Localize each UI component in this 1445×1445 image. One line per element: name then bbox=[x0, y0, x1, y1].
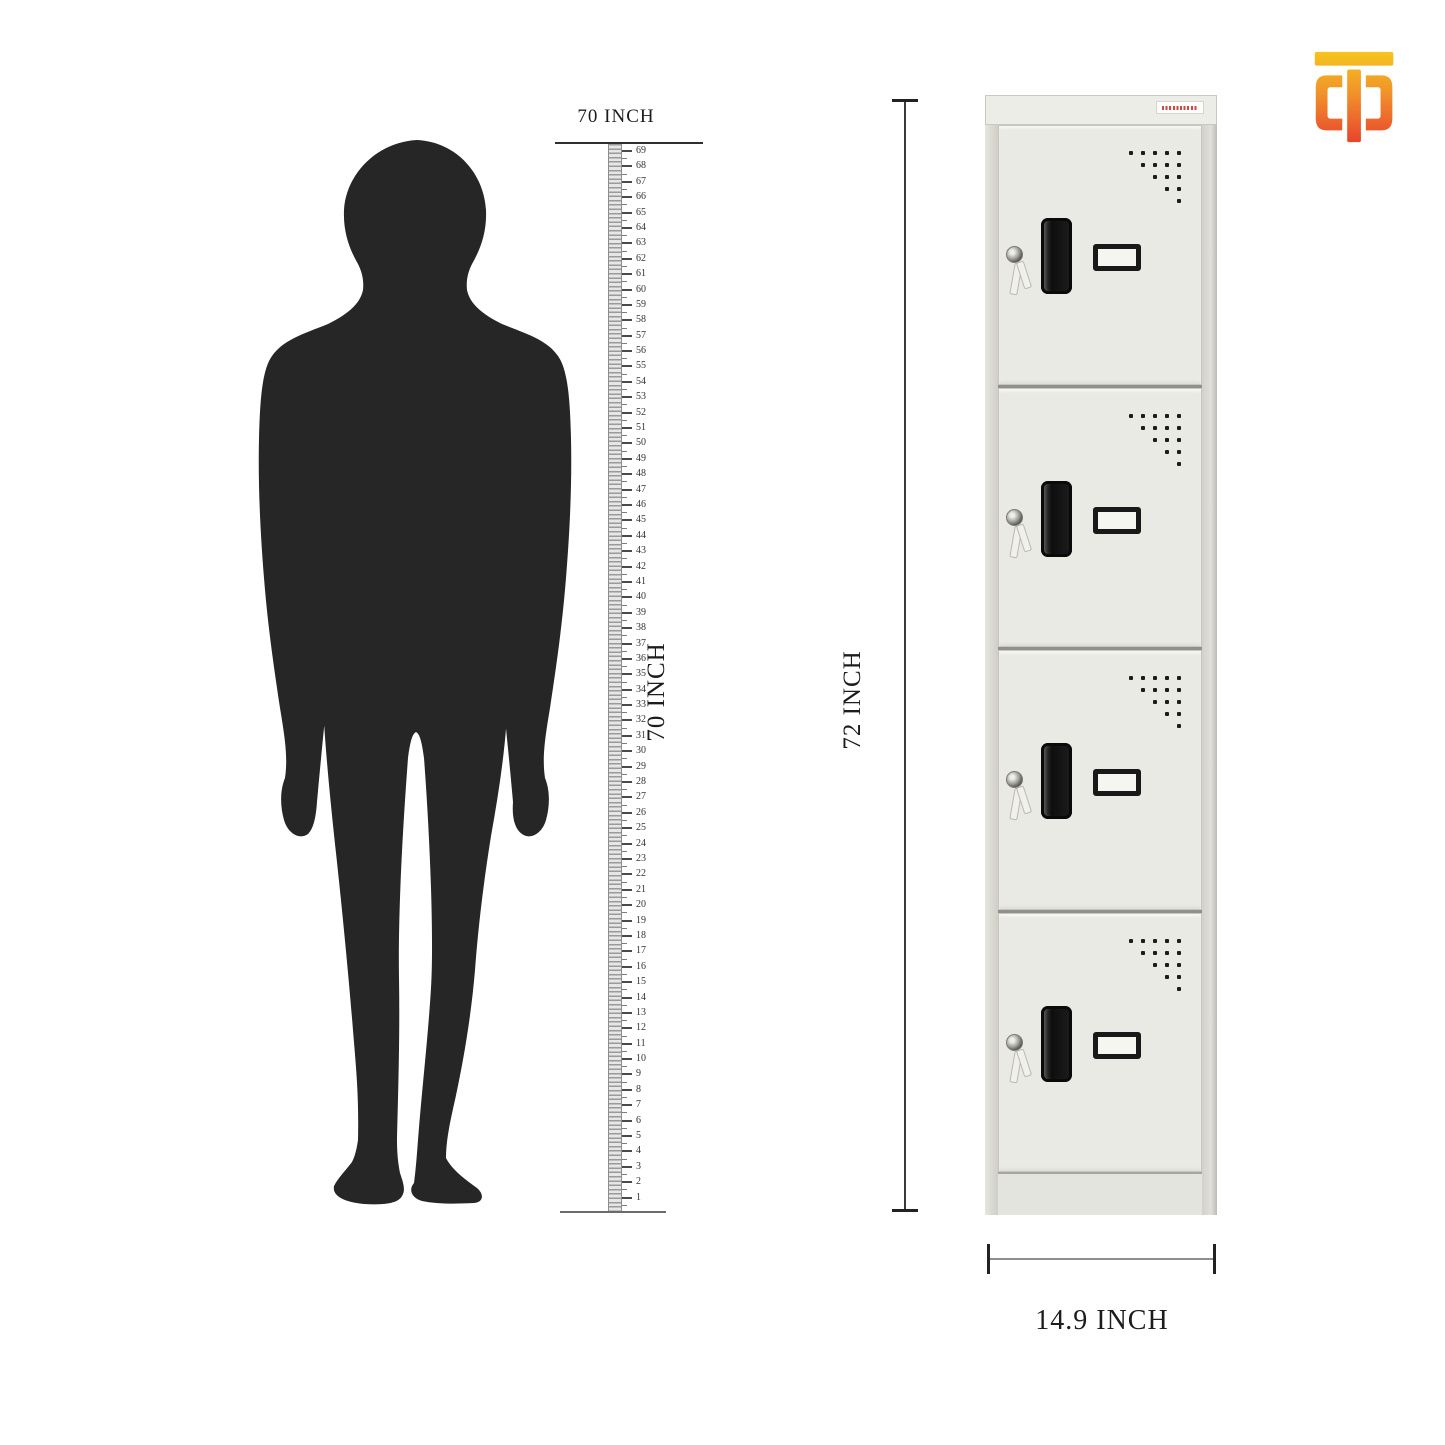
ruler-number: 18 bbox=[636, 930, 646, 942]
ruler-number: 14 bbox=[636, 992, 646, 1004]
ruler-number: 11 bbox=[636, 1038, 646, 1050]
locker-door bbox=[998, 650, 1202, 910]
ruler-number: 27 bbox=[636, 791, 646, 803]
ruler-number: 8 bbox=[636, 1084, 641, 1096]
ruler-number: 69 bbox=[636, 145, 646, 157]
ruler-top-label: 70 INCH bbox=[552, 106, 680, 128]
ruler-number: 46 bbox=[636, 499, 646, 511]
ruler-number: 5 bbox=[636, 1130, 641, 1142]
ruler-strip bbox=[608, 144, 622, 1213]
height-dimension-cap-top bbox=[892, 99, 918, 102]
ruler-number: 52 bbox=[636, 407, 646, 419]
ruler-number: 24 bbox=[636, 838, 646, 850]
ruler-number: 58 bbox=[636, 314, 646, 326]
ruler-number: 45 bbox=[636, 514, 646, 526]
product-dimension-diagram: 70 INCH 12345678910111213141516171819202… bbox=[0, 0, 1445, 1445]
ruler-number: 50 bbox=[636, 437, 646, 449]
ruler-side-label: 70 INCH bbox=[643, 642, 671, 741]
width-dimension-cap-left bbox=[987, 1244, 990, 1274]
ruler-number: 54 bbox=[636, 376, 646, 388]
locker-plinth bbox=[998, 1172, 1202, 1215]
door-handle bbox=[1041, 743, 1072, 819]
ruler-number: 65 bbox=[636, 207, 646, 219]
vent-holes bbox=[1129, 151, 1181, 203]
ruler-number: 38 bbox=[636, 622, 646, 634]
ruler-number: 49 bbox=[636, 453, 646, 465]
door-handle bbox=[1041, 218, 1072, 294]
ruler-number: 60 bbox=[636, 284, 646, 296]
locker-doors bbox=[998, 125, 1202, 1172]
vent-holes bbox=[1129, 676, 1181, 728]
label-holder bbox=[1093, 244, 1141, 271]
locker-door bbox=[998, 125, 1202, 385]
ruler-number: 12 bbox=[636, 1022, 646, 1034]
locker-door bbox=[998, 388, 1202, 648]
label-holder bbox=[1093, 769, 1141, 796]
locker-door bbox=[998, 913, 1202, 1173]
door-handle bbox=[1041, 481, 1072, 557]
height-ruler: 1234567891011121314151617181920212223242… bbox=[556, 144, 716, 1213]
label-holder bbox=[1093, 1032, 1141, 1059]
ruler-number: 63 bbox=[636, 237, 646, 249]
ruler-number: 17 bbox=[636, 945, 646, 957]
vent-holes bbox=[1129, 414, 1181, 466]
ruler-number: 19 bbox=[636, 915, 646, 927]
locker-left-frame bbox=[985, 123, 998, 1215]
ruler-number: 64 bbox=[636, 222, 646, 234]
height-dimension-line bbox=[904, 100, 906, 1212]
ruler-number: 7 bbox=[636, 1099, 641, 1111]
ruler-number: 25 bbox=[636, 822, 646, 834]
ruler-number: 40 bbox=[636, 591, 646, 603]
ruler-number: 67 bbox=[636, 176, 646, 188]
ruler-number: 20 bbox=[636, 899, 646, 911]
ruler-number: 61 bbox=[636, 268, 646, 280]
ruler-number: 56 bbox=[636, 345, 646, 357]
locker-top-cap bbox=[985, 95, 1217, 125]
ruler-number: 42 bbox=[636, 561, 646, 573]
brand-logo-icon bbox=[1303, 42, 1411, 154]
ruler-number: 57 bbox=[636, 330, 646, 342]
ruler-number: 4 bbox=[636, 1145, 641, 1157]
ruler-number: 23 bbox=[636, 853, 646, 865]
ruler-number: 41 bbox=[636, 576, 646, 588]
ruler-number: 62 bbox=[636, 253, 646, 265]
ruler-number: 26 bbox=[636, 807, 646, 819]
ruler-number: 2 bbox=[636, 1176, 641, 1188]
ruler-number: 53 bbox=[636, 391, 646, 403]
human-silhouette bbox=[232, 138, 577, 1213]
hanging-keys bbox=[1003, 260, 1033, 302]
locker-right-frame bbox=[1202, 123, 1217, 1215]
vent-holes bbox=[1129, 939, 1181, 991]
ruler-number: 48 bbox=[636, 468, 646, 480]
width-dimension-cap-right bbox=[1213, 1244, 1216, 1274]
locker-height-label: 72 INCH bbox=[839, 650, 867, 749]
door-handle bbox=[1041, 1006, 1072, 1082]
human-silhouette-path bbox=[259, 140, 572, 1204]
ruler-number: 1 bbox=[636, 1192, 641, 1204]
ruler-number: 59 bbox=[636, 299, 646, 311]
ruler-number: 30 bbox=[636, 745, 646, 757]
ruler-number: 21 bbox=[636, 884, 646, 896]
ruler-number: 51 bbox=[636, 422, 646, 434]
ruler-number: 10 bbox=[636, 1053, 646, 1065]
ruler-number: 3 bbox=[636, 1161, 641, 1173]
ruler-number: 66 bbox=[636, 191, 646, 203]
hanging-keys bbox=[1003, 785, 1033, 827]
brand-label bbox=[1156, 101, 1204, 114]
brand-label-text bbox=[1162, 106, 1198, 110]
ruler-number: 47 bbox=[636, 484, 646, 496]
ruler-number: 16 bbox=[636, 961, 646, 973]
locker-width-label: 14.9 INCH bbox=[988, 1305, 1216, 1337]
width-dimension-line bbox=[988, 1258, 1216, 1260]
locker-cabinet bbox=[985, 95, 1217, 1215]
hanging-keys bbox=[1003, 523, 1033, 565]
ruler-number: 43 bbox=[636, 545, 646, 557]
ruler-number: 29 bbox=[636, 761, 646, 773]
ruler-number: 55 bbox=[636, 360, 646, 372]
height-dimension-cap-bottom bbox=[892, 1209, 918, 1212]
ruler-bottom-line bbox=[560, 1211, 666, 1213]
ruler-number: 68 bbox=[636, 160, 646, 172]
ruler-number: 13 bbox=[636, 1007, 646, 1019]
ruler-number: 39 bbox=[636, 607, 646, 619]
ruler-number: 22 bbox=[636, 868, 646, 880]
ruler-number: 9 bbox=[636, 1068, 641, 1080]
ruler-number: 6 bbox=[636, 1115, 641, 1127]
label-holder bbox=[1093, 507, 1141, 534]
hanging-keys bbox=[1003, 1048, 1033, 1090]
ruler-number: 44 bbox=[636, 530, 646, 542]
ruler-number: 15 bbox=[636, 976, 646, 988]
ruler-number: 28 bbox=[636, 776, 646, 788]
